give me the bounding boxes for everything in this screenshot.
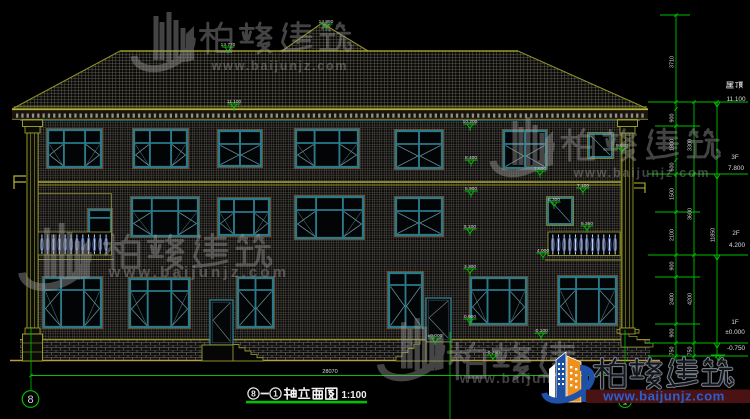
svg-text:www.baijunjz.com: www.baijunjz.com bbox=[108, 264, 290, 281]
svg-text:1:100: 1:100 bbox=[341, 390, 367, 401]
svg-text:11.100: 11.100 bbox=[726, 96, 746, 103]
svg-text:2100: 2100 bbox=[670, 229, 676, 241]
svg-text:4.200: 4.200 bbox=[729, 242, 745, 249]
svg-text:1F: 1F bbox=[731, 319, 738, 326]
svg-text:7.800: 7.800 bbox=[728, 165, 744, 172]
svg-text:900: 900 bbox=[670, 329, 676, 338]
svg-text:-0.750: -0.750 bbox=[727, 345, 746, 352]
svg-text:2400: 2400 bbox=[670, 293, 676, 305]
svg-text:www.baijunjz.com: www.baijunjz.com bbox=[211, 59, 349, 73]
svg-text:3600: 3600 bbox=[688, 208, 694, 220]
svg-text:750: 750 bbox=[670, 347, 676, 356]
svg-text:8: 8 bbox=[27, 394, 33, 406]
svg-text:900: 900 bbox=[670, 114, 676, 123]
svg-text:750: 750 bbox=[688, 347, 694, 356]
svg-text:3710: 3710 bbox=[670, 56, 676, 68]
svg-text:3F: 3F bbox=[731, 154, 738, 161]
svg-text:1: 1 bbox=[273, 389, 278, 399]
svg-text:www.baijunjz.com: www.baijunjz.com bbox=[573, 166, 711, 180]
svg-text:www.baijun: www.baijun bbox=[459, 371, 553, 386]
svg-text:www.baijunjz.com: www.baijunjz.com bbox=[602, 389, 725, 404]
svg-text:1500: 1500 bbox=[670, 188, 676, 200]
svg-text:4200: 4200 bbox=[688, 293, 694, 305]
svg-text:28070: 28070 bbox=[322, 369, 338, 375]
svg-text:2F: 2F bbox=[732, 230, 739, 237]
svg-text:900: 900 bbox=[670, 262, 676, 271]
svg-text:11850: 11850 bbox=[711, 228, 717, 243]
svg-text:±0.000: ±0.000 bbox=[725, 329, 745, 336]
svg-text:8: 8 bbox=[251, 389, 256, 399]
